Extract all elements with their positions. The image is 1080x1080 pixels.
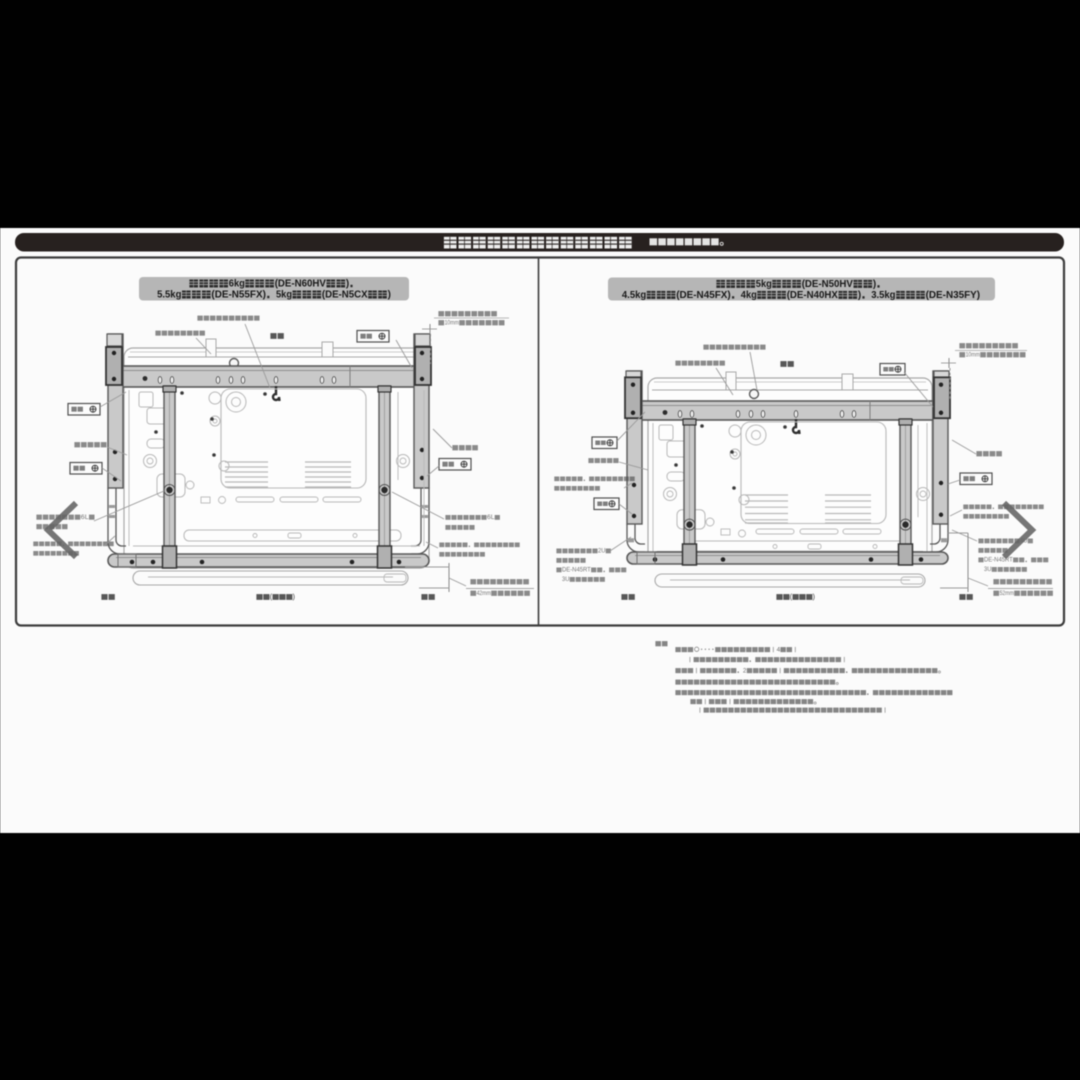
svg-text:4kg: 4kg [741, 290, 757, 301]
svg-text:52mm: 52mm [1000, 590, 1015, 597]
svg-text:3U: 3U [984, 566, 991, 573]
svg-text:): ) [346, 278, 349, 289]
svg-text:3U: 3U [562, 576, 569, 583]
svg-text:(DE-N50HV: (DE-N50HV [802, 279, 853, 290]
svg-text:): ) [873, 279, 876, 290]
svg-text:42mm: 42mm [477, 590, 492, 597]
svg-text:10mm: 10mm [966, 352, 981, 359]
svg-text:2U: 2U [598, 548, 605, 555]
svg-text:6L: 6L [81, 514, 89, 521]
svg-text:3.5kg: 3.5kg [871, 290, 895, 301]
svg-text:6kg: 6kg [229, 278, 245, 289]
svg-text:4: 4 [777, 646, 781, 653]
svg-text:5kg: 5kg [756, 279, 772, 290]
svg-text:10mm: 10mm [445, 320, 460, 327]
svg-text:): ) [388, 289, 391, 300]
svg-text:): ) [293, 592, 295, 601]
svg-text:(DE-N5CX: (DE-N5CX [322, 289, 368, 300]
svg-text:DE-N45RT: DE-N45RT [984, 557, 1013, 564]
svg-text:(DE-N60HV: (DE-N60HV [275, 278, 326, 289]
svg-text:5kg: 5kg [276, 289, 292, 300]
svg-text:): ) [813, 592, 815, 601]
svg-text:4.5kg: 4.5kg [622, 290, 646, 301]
svg-text:): ) [858, 290, 861, 301]
svg-text:2: 2 [743, 667, 747, 674]
svg-text:(DE-N45FX): (DE-N45FX) [676, 290, 731, 301]
svg-text:(DE-N40HX: (DE-N40HX [787, 290, 838, 301]
svg-text:6L: 6L [487, 514, 495, 521]
svg-text:5.5kg: 5.5kg [157, 289, 181, 300]
svg-text:(DE-N35FY): (DE-N35FY) [926, 290, 981, 301]
svg-text:DE-N45RT: DE-N45RT [562, 567, 591, 574]
svg-text:(DE-N55FX): (DE-N55FX) [211, 289, 266, 300]
